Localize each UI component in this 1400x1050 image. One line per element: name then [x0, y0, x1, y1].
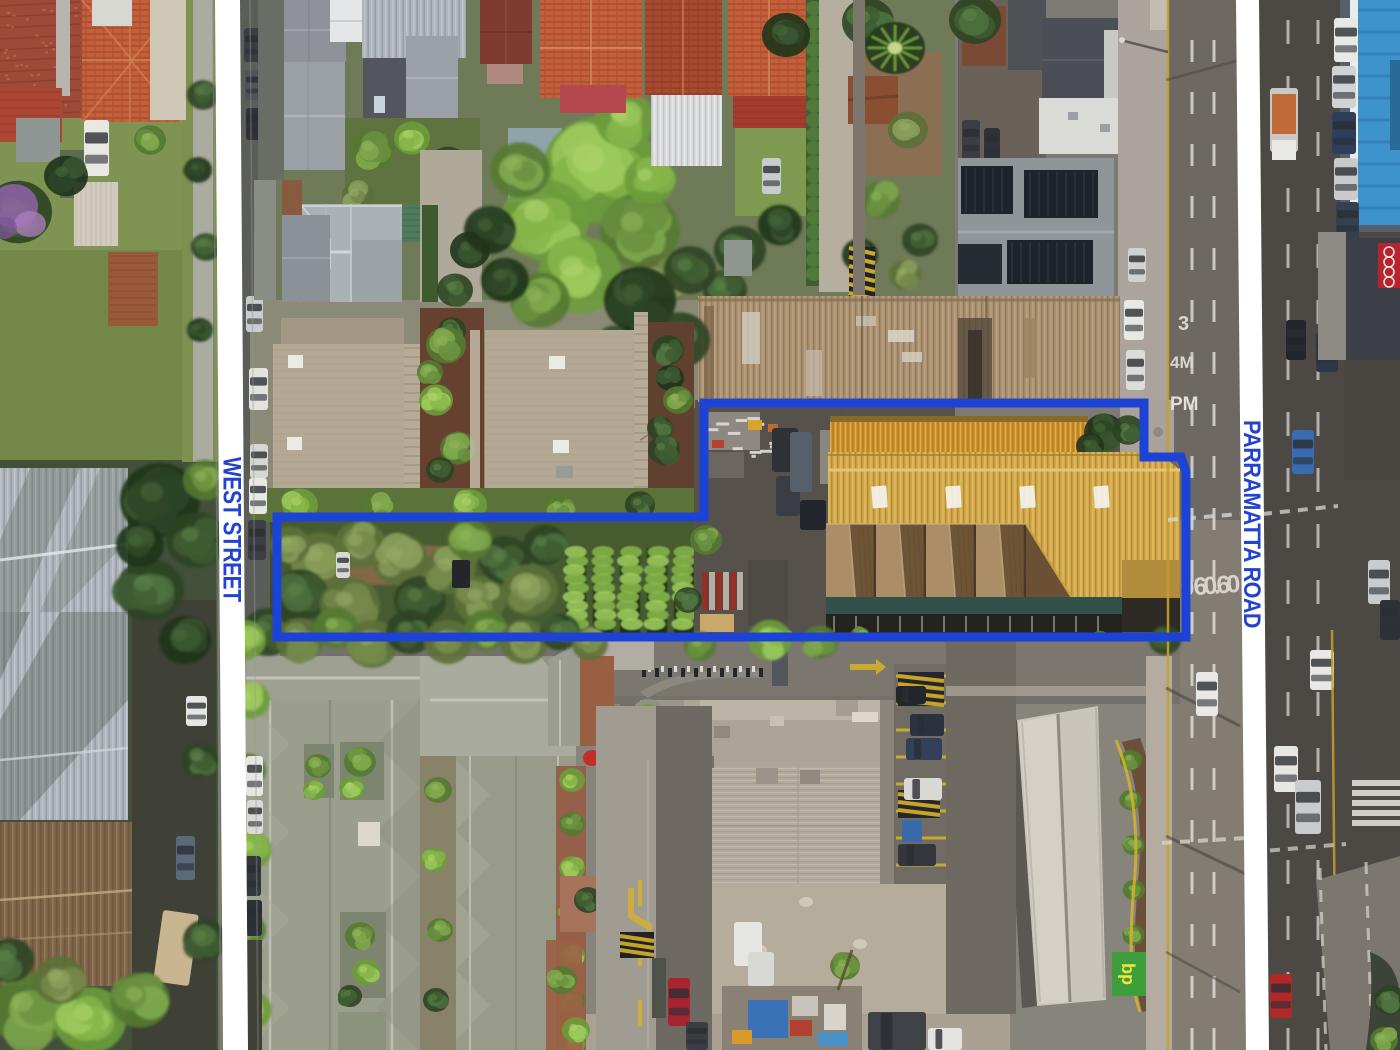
svg-text:WEST STREET: WEST STREET: [218, 457, 246, 602]
svg-text:bp: bp: [1118, 963, 1138, 985]
svg-text:PM: PM: [1170, 394, 1199, 415]
svg-text:4M: 4M: [1170, 353, 1194, 372]
svg-text:3: 3: [1178, 313, 1189, 335]
svg-text:PARRAMATTA ROAD: PARRAMATTA ROAD: [1239, 420, 1267, 628]
